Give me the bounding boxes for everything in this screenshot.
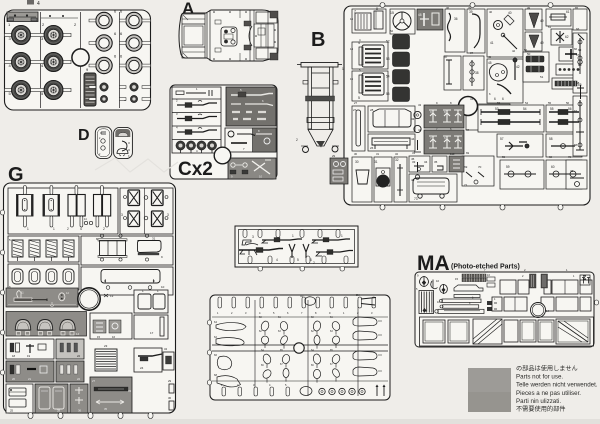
svg-text:26: 26 <box>370 146 374 150</box>
svg-text:27: 27 <box>92 379 96 383</box>
svg-text:37: 37 <box>444 55 448 59</box>
svg-text:13: 13 <box>110 294 114 298</box>
svg-text:68: 68 <box>574 143 578 147</box>
svg-text:1: 1 <box>292 234 294 238</box>
svg-text:6: 6 <box>502 97 504 101</box>
svg-text:1: 1 <box>341 234 343 238</box>
svg-text:55: 55 <box>550 107 554 111</box>
svg-text:72: 72 <box>570 169 574 173</box>
svg-text:56: 56 <box>566 101 570 105</box>
svg-text:41: 41 <box>490 41 494 45</box>
svg-text:Cx2: Cx2 <box>178 159 213 180</box>
svg-text:27: 27 <box>354 101 358 105</box>
svg-text:54: 54 <box>523 107 527 111</box>
svg-text:33: 33 <box>412 160 416 164</box>
svg-text:25: 25 <box>10 409 14 413</box>
svg-text:31: 31 <box>152 237 156 241</box>
svg-text:62: 62 <box>565 35 569 39</box>
svg-text:69: 69 <box>464 165 468 169</box>
svg-text:58: 58 <box>549 137 553 141</box>
svg-text:71: 71 <box>464 183 468 187</box>
svg-text:19: 19 <box>27 354 31 358</box>
svg-text:66: 66 <box>576 27 580 31</box>
svg-text:30: 30 <box>168 396 172 400</box>
svg-text:10: 10 <box>436 279 440 283</box>
svg-text:33: 33 <box>128 389 132 393</box>
svg-text:不需要使用的部件: 不需要使用的部件 <box>516 405 566 413</box>
svg-text:73: 73 <box>414 197 418 201</box>
svg-text:40: 40 <box>489 10 493 14</box>
svg-text:38: 38 <box>475 71 479 75</box>
svg-text:54: 54 <box>386 75 390 79</box>
svg-text:61: 61 <box>548 25 552 29</box>
svg-text:60: 60 <box>551 165 555 169</box>
svg-text:44: 44 <box>418 128 422 132</box>
svg-text:33: 33 <box>412 151 416 155</box>
svg-text:52: 52 <box>386 40 390 44</box>
svg-text:53: 53 <box>495 107 499 111</box>
svg-text:67: 67 <box>574 109 578 113</box>
svg-text:50: 50 <box>527 52 531 56</box>
svg-text:15: 15 <box>350 77 354 81</box>
svg-text:15: 15 <box>390 11 394 15</box>
svg-text:5: 5 <box>358 96 360 100</box>
svg-text:2: 2 <box>103 227 105 231</box>
svg-text:51: 51 <box>540 75 544 79</box>
svg-text:20: 20 <box>12 377 16 381</box>
svg-text:15: 15 <box>97 335 101 339</box>
svg-text:36: 36 <box>446 6 450 10</box>
svg-text:22: 22 <box>77 377 81 381</box>
svg-text:40: 40 <box>508 11 512 15</box>
svg-text:14: 14 <box>546 309 550 313</box>
svg-text:17: 17 <box>150 331 154 335</box>
svg-text:36: 36 <box>78 409 82 413</box>
svg-text:21: 21 <box>28 377 32 381</box>
svg-text:31: 31 <box>374 160 378 164</box>
svg-text:B: B <box>311 29 325 51</box>
svg-text:3: 3 <box>167 213 169 217</box>
svg-text:1: 1 <box>342 67 344 71</box>
svg-text:3: 3 <box>121 213 123 217</box>
svg-text:55: 55 <box>386 92 390 96</box>
svg-text:65: 65 <box>575 6 579 10</box>
svg-text:の部品は使用しません: の部品は使用しません <box>516 365 578 373</box>
svg-text:53: 53 <box>386 57 390 61</box>
svg-text:4: 4 <box>80 227 82 231</box>
svg-text:37: 37 <box>470 51 474 55</box>
svg-text:15: 15 <box>455 277 459 281</box>
svg-text:16: 16 <box>350 17 354 21</box>
svg-text:7: 7 <box>354 10 356 14</box>
svg-text:27: 27 <box>353 108 357 112</box>
svg-text:53: 53 <box>497 101 501 105</box>
svg-text:35: 35 <box>434 160 438 164</box>
svg-text:23: 23 <box>104 344 108 348</box>
svg-text:5: 5 <box>297 258 299 262</box>
svg-text:32: 32 <box>395 152 399 156</box>
svg-text:Pieces a ne pas utiliser.: Pieces a ne pas utiliser. <box>516 390 581 397</box>
svg-text:66: 66 <box>574 47 578 51</box>
svg-text:28: 28 <box>370 108 374 112</box>
svg-text:1: 1 <box>27 227 29 231</box>
svg-text:49: 49 <box>527 6 531 10</box>
svg-text:61: 61 <box>566 10 570 14</box>
svg-text:EM: EM <box>356 295 360 297</box>
svg-text:10: 10 <box>259 175 263 179</box>
svg-text:4: 4 <box>276 258 278 262</box>
svg-text:59: 59 <box>506 165 510 169</box>
svg-text:70: 70 <box>478 165 482 169</box>
svg-text:41: 41 <box>470 97 474 101</box>
svg-text:110: 110 <box>450 152 455 156</box>
svg-text:Parts not for use.: Parts not for use. <box>516 374 563 381</box>
svg-text:2: 2 <box>67 227 69 231</box>
svg-text:68: 68 <box>576 81 580 85</box>
svg-text:72: 72 <box>568 155 572 159</box>
svg-text:39: 39 <box>469 10 473 14</box>
svg-text:35: 35 <box>104 407 108 411</box>
svg-text:49: 49 <box>540 19 544 23</box>
svg-text:52: 52 <box>390 29 394 33</box>
svg-text:28: 28 <box>57 409 61 413</box>
svg-text:2: 2 <box>313 261 315 265</box>
svg-text:4: 4 <box>37 1 40 7</box>
svg-text:50: 50 <box>524 48 528 52</box>
svg-text:29: 29 <box>168 379 172 383</box>
svg-text:16: 16 <box>112 335 116 339</box>
svg-text:60: 60 <box>549 155 553 159</box>
svg-text:24: 24 <box>140 366 144 370</box>
svg-text:6: 6 <box>494 97 496 101</box>
svg-text:47: 47 <box>466 128 470 132</box>
svg-text:31: 31 <box>376 152 380 156</box>
svg-text:34: 34 <box>164 347 168 351</box>
svg-text:CR: CR <box>300 296 304 298</box>
svg-text:45: 45 <box>488 55 492 59</box>
svg-text:69: 69 <box>466 151 470 155</box>
svg-text:2: 2 <box>296 138 298 142</box>
svg-text:32: 32 <box>395 158 399 162</box>
svg-text:55: 55 <box>548 101 552 105</box>
svg-text:42: 42 <box>516 65 520 69</box>
svg-text:42: 42 <box>512 49 516 53</box>
svg-text:36: 36 <box>454 17 458 21</box>
svg-text:45: 45 <box>488 61 492 65</box>
svg-text:43: 43 <box>411 117 415 121</box>
svg-text:1: 1 <box>53 227 55 231</box>
svg-text:29: 29 <box>332 154 336 158</box>
svg-text:Telle werden nicht verwendet.: Telle werden nicht verwendet. <box>516 382 598 389</box>
svg-text:3: 3 <box>252 235 254 239</box>
svg-text:56: 56 <box>568 107 572 111</box>
svg-text:14: 14 <box>350 47 354 51</box>
svg-text:Parti nin ulizzati.: Parti nin ulizzati. <box>516 398 561 405</box>
svg-text:43: 43 <box>418 103 422 107</box>
svg-text:59: 59 <box>502 155 506 159</box>
svg-text:18: 18 <box>12 354 16 358</box>
svg-text:30: 30 <box>355 160 359 164</box>
svg-text:8: 8 <box>376 7 378 11</box>
svg-text:34: 34 <box>424 160 428 164</box>
svg-text:30: 30 <box>354 152 358 156</box>
svg-text:49: 49 <box>540 41 544 45</box>
svg-text:57: 57 <box>500 137 504 141</box>
svg-text:44: 44 <box>411 137 415 141</box>
svg-text:54: 54 <box>525 101 529 105</box>
svg-text:48: 48 <box>418 13 422 17</box>
svg-text:10: 10 <box>161 285 165 289</box>
svg-text:D: D <box>78 127 90 144</box>
svg-text:14: 14 <box>76 332 80 336</box>
svg-text:22: 22 <box>77 354 81 358</box>
